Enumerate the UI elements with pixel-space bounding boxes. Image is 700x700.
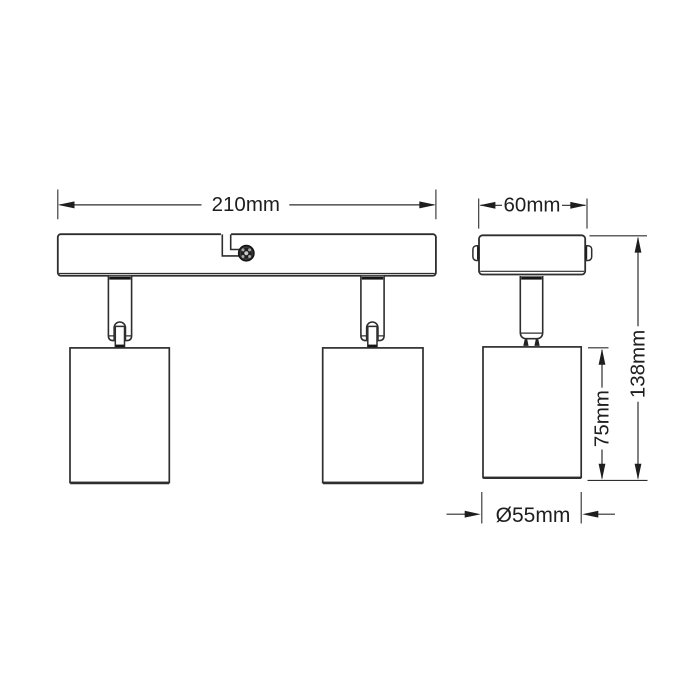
svg-text:210mm: 210mm — [212, 193, 280, 216]
svg-text:Ø55mm: Ø55mm — [496, 504, 571, 527]
svg-text:138mm: 138mm — [627, 330, 650, 398]
svg-text:75mm: 75mm — [591, 390, 614, 447]
svg-text:60mm: 60mm — [504, 193, 561, 216]
